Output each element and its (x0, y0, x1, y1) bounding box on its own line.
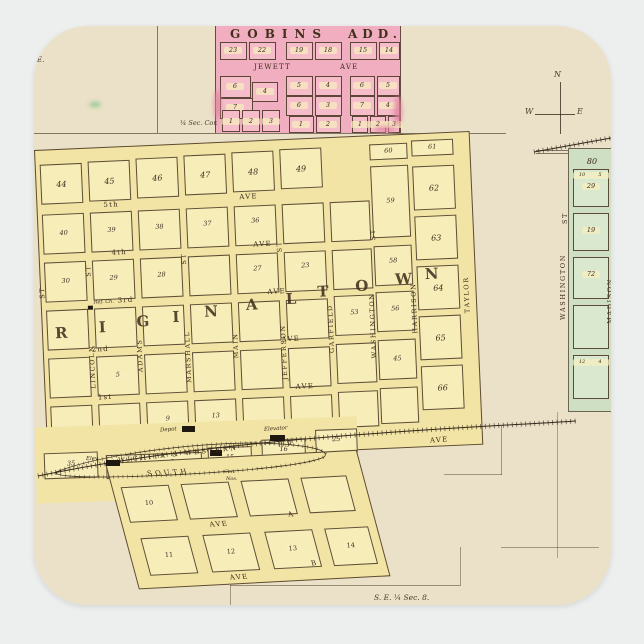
depot-label: Depot (160, 426, 177, 433)
survey-note: Nos. (226, 476, 238, 482)
southeast-quarter-label: S. E. ¼ Sec. 8. (374, 593, 429, 602)
railroad-lines (34, 26, 611, 605)
depot-building (182, 426, 195, 432)
elevator-short-label: Elev. (86, 456, 99, 462)
railroad-abbrev-label: R.R. (278, 439, 297, 449)
product-photo: E. N W E GOBINS ADD. 23 22 19 18 15 14 J… (0, 0, 644, 644)
southwest-quarter-label: ¼ Sec. 8. (42, 602, 77, 605)
survey-note: Con. (224, 469, 236, 475)
map-sticker: E. N W E GOBINS ADD. 23 22 19 18 15 14 J… (34, 26, 611, 605)
